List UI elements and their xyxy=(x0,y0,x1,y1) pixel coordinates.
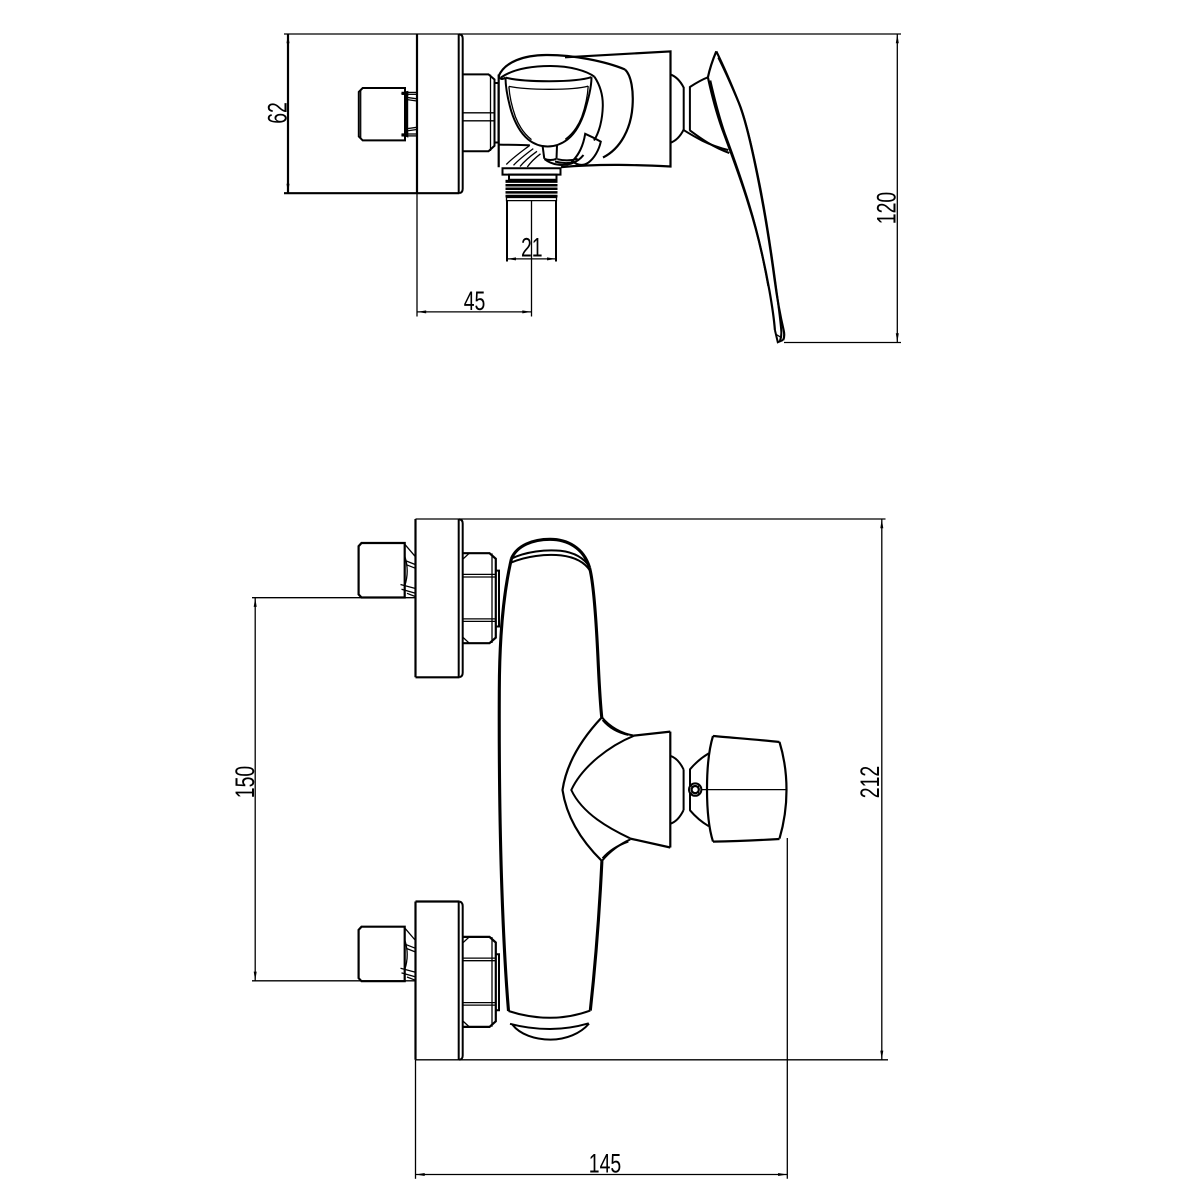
svg-text:150: 150 xyxy=(230,766,260,798)
svg-text:21: 21 xyxy=(521,232,543,262)
svg-text:120: 120 xyxy=(871,192,901,224)
svg-text:145: 145 xyxy=(589,1148,621,1178)
svg-text:62: 62 xyxy=(262,102,292,124)
svg-text:45: 45 xyxy=(464,286,486,316)
svg-text:212: 212 xyxy=(855,766,885,798)
